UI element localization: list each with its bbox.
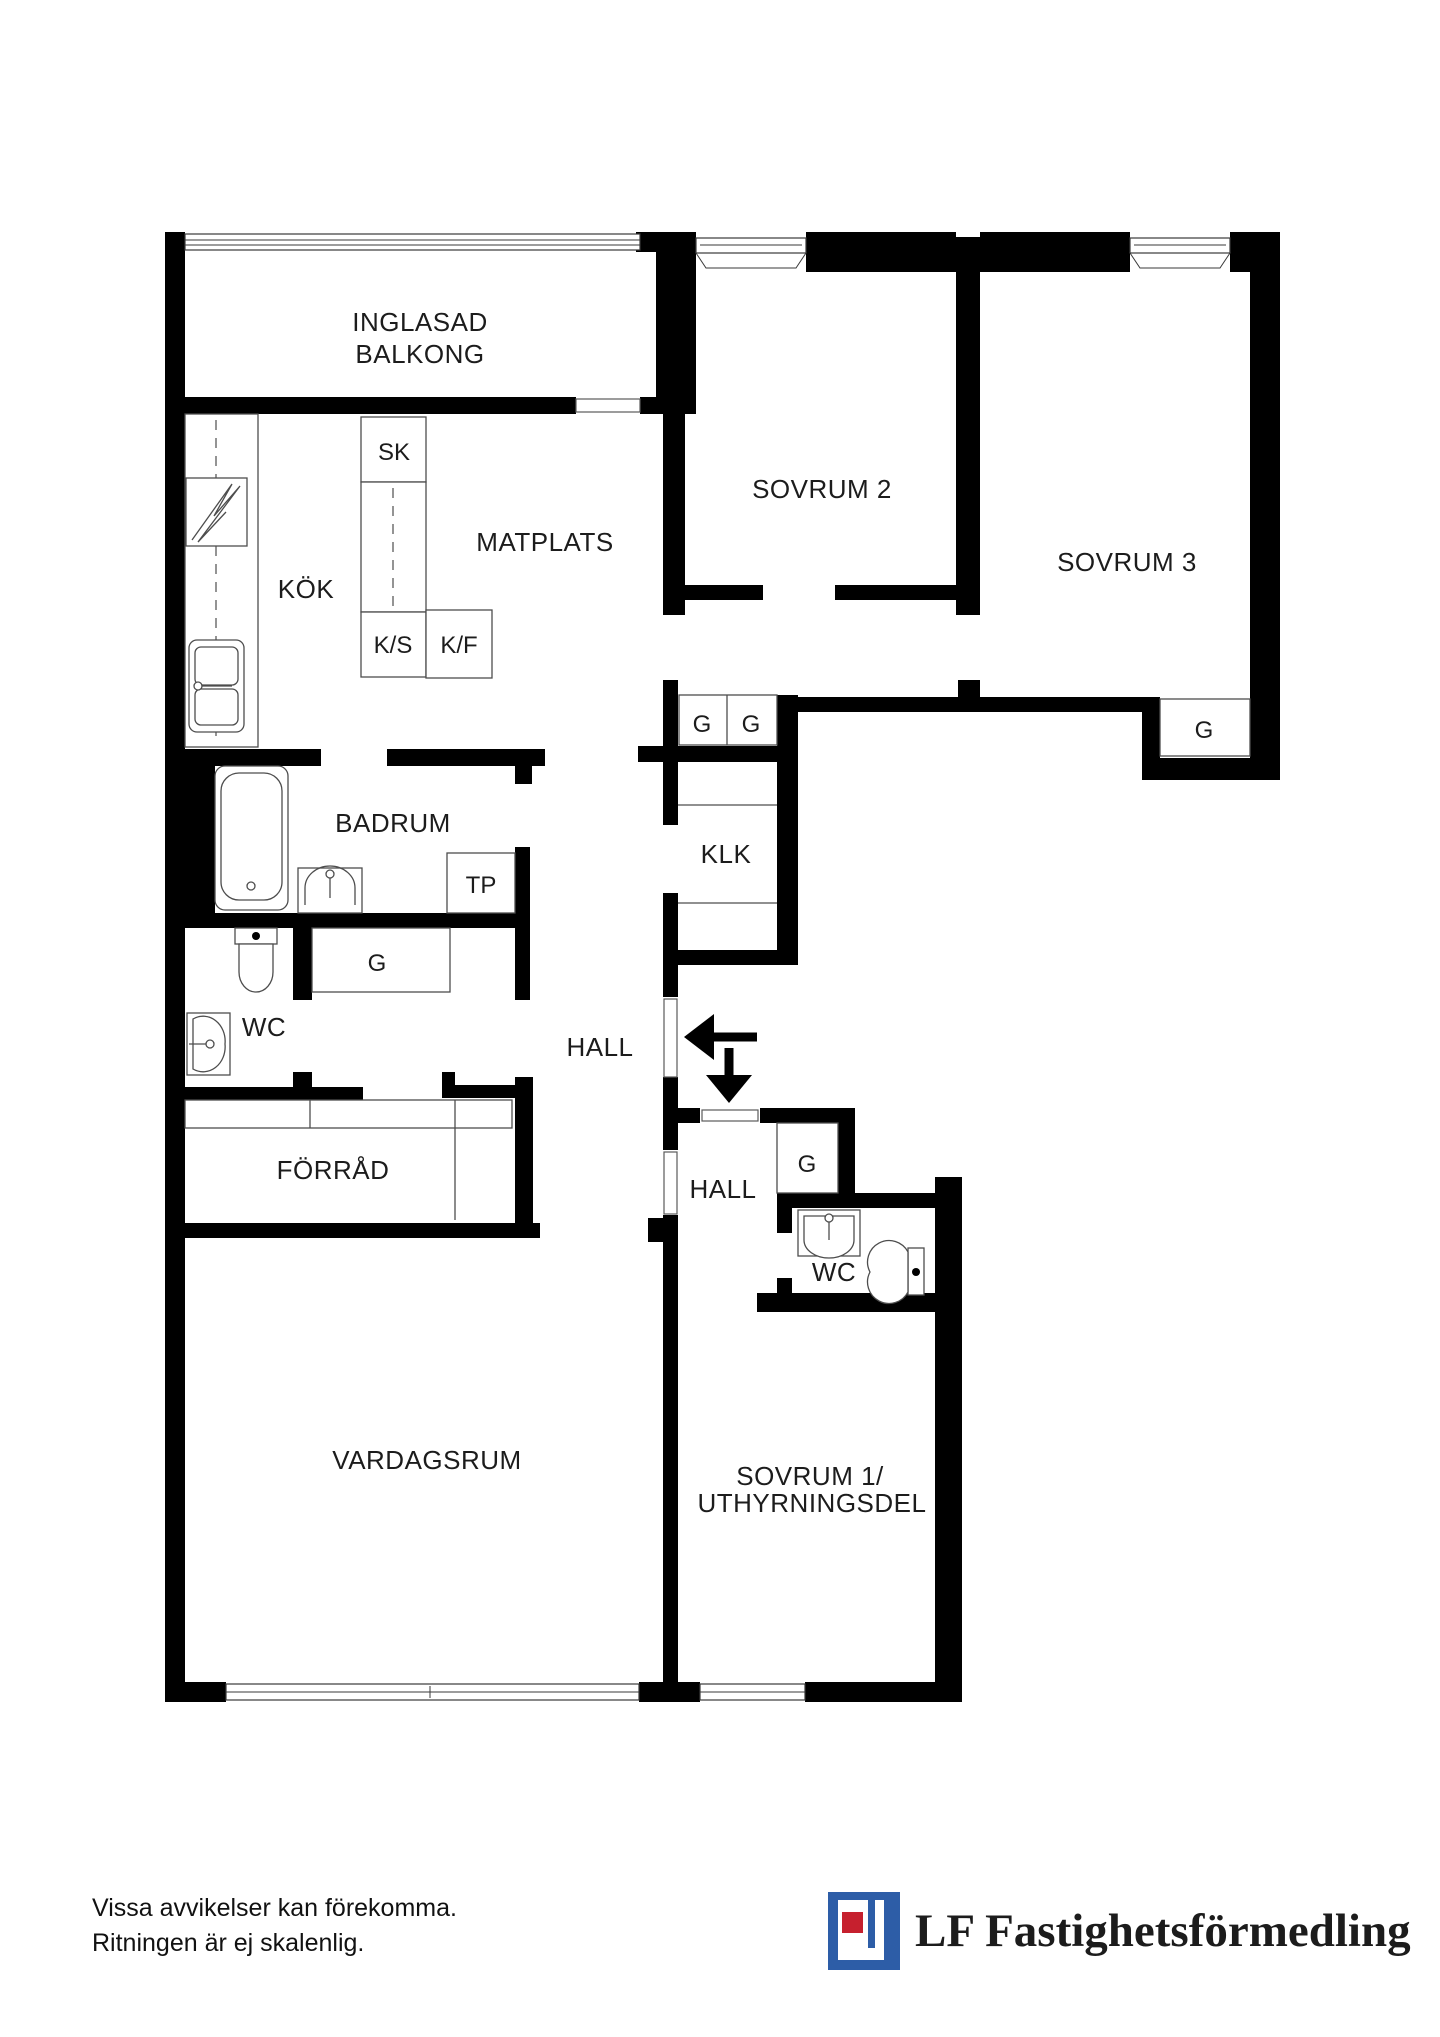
label-walk-in-closet: KLK xyxy=(701,839,752,869)
wc-upper-sink xyxy=(187,1013,230,1075)
bedroom3-window xyxy=(1130,238,1230,268)
storage-shelf xyxy=(185,1100,512,1128)
label-closet-g2: G xyxy=(742,711,761,738)
balcony-window xyxy=(185,234,640,250)
label-kitchen: KÖK xyxy=(278,574,335,604)
logo-mark-white-slit xyxy=(875,1900,884,1956)
livingroom-window xyxy=(226,1684,639,1700)
label-bedroom2: SOVRUM 2 xyxy=(752,474,892,504)
company-logo: LF Fastighetsförmedling xyxy=(828,1892,1411,1970)
label-balcony-1: INGLASAD xyxy=(352,307,488,337)
label-cabinet-ks: K/S xyxy=(374,632,413,659)
entry-arrow-left xyxy=(684,1014,757,1060)
label-closet-bathroom: G xyxy=(368,950,387,977)
footer: Vissa avvikelser kan förekomma. Ritninge… xyxy=(92,1892,1411,1970)
label-cabinet-kf: K/F xyxy=(440,632,477,659)
wc-lower-sink xyxy=(798,1210,860,1258)
label-storage: FÖRRÅD xyxy=(277,1155,390,1185)
label-towel-dryer: TP xyxy=(466,872,497,899)
logo-mark-red-square xyxy=(842,1912,863,1933)
label-bedroom3: SOVRUM 3 xyxy=(1057,547,1197,577)
lower-hall-door xyxy=(702,1110,758,1121)
logo-mark-white-bottom xyxy=(838,1948,884,1960)
bedroom2-window xyxy=(696,238,806,268)
entry-door xyxy=(664,999,677,1077)
label-hall-upper: HALL xyxy=(566,1032,633,1062)
disclaimer-line2: Ritningen är ej skalenlig. xyxy=(92,1929,364,1957)
bathroom-sink xyxy=(298,866,362,913)
label-balcony-2: BALKONG xyxy=(355,339,484,369)
balcony-door xyxy=(576,399,640,412)
label-wc-lower: WC xyxy=(812,1257,856,1287)
bedroom1-window xyxy=(700,1684,805,1700)
bathtub xyxy=(215,766,288,910)
disclaimer-line1: Vissa avvikelser kan förekomma. xyxy=(92,1894,457,1922)
logo-text: LF Fastighetsförmedling xyxy=(915,1905,1411,1957)
label-closet-bedroom3: G xyxy=(1195,717,1214,744)
label-living-room: VARDAGSRUM xyxy=(332,1445,521,1475)
toilet-lower xyxy=(868,1241,924,1304)
label-closet-hall-lower: G xyxy=(798,1151,817,1178)
wc-upper-fixtures xyxy=(187,928,450,1075)
hall-connecting-door xyxy=(664,1152,677,1214)
toilet-upper xyxy=(235,928,277,992)
floorplan-page: INGLASAD BALKONG SOVRUM 2 SOVRUM 3 KÖK M… xyxy=(0,0,1440,2037)
entry-arrows xyxy=(684,1014,757,1103)
kitchen-fixtures xyxy=(185,414,492,747)
label-hall-lower: HALL xyxy=(689,1174,756,1204)
floorplan-drawing: INGLASAD BALKONG SOVRUM 2 SOVRUM 3 KÖK M… xyxy=(0,0,1440,2037)
label-bedroom1-2: UTHYRNINGSDEL xyxy=(698,1488,927,1518)
logo-mark xyxy=(828,1892,900,1970)
kitchen-sink xyxy=(189,640,244,732)
label-bathroom: BADRUM xyxy=(335,808,451,838)
label-closet-g1: G xyxy=(693,711,712,738)
label-cabinet-sk: SK xyxy=(378,439,410,466)
label-dining: MATPLATS xyxy=(476,527,613,557)
label-wc-upper: WC xyxy=(242,1012,286,1042)
label-bedroom1-1: SOVRUM 1/ xyxy=(736,1461,884,1491)
